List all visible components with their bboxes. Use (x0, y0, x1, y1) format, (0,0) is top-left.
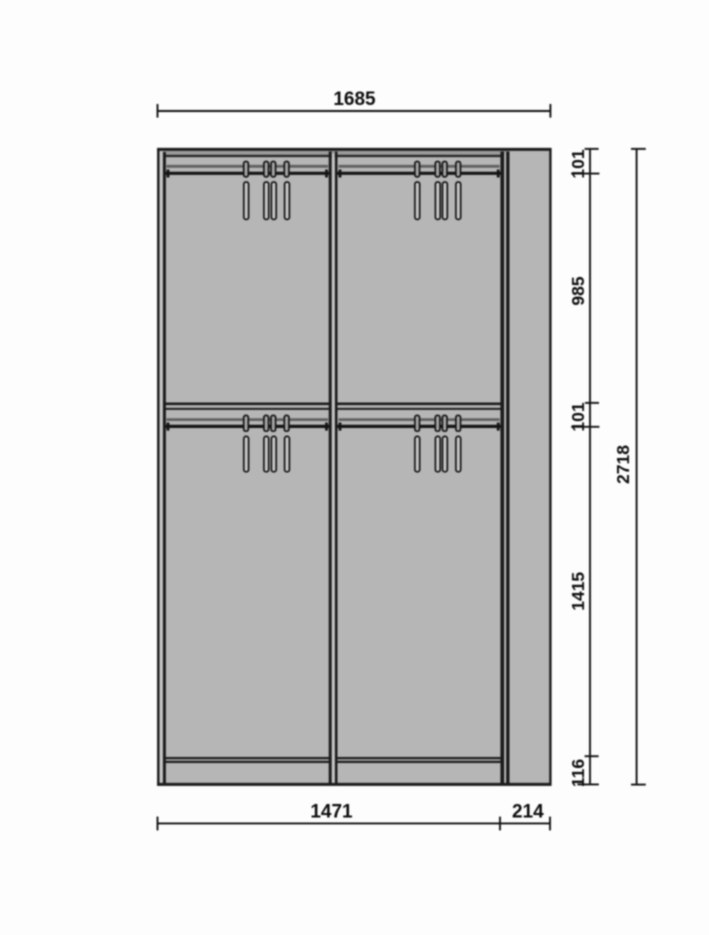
svg-text:1415: 1415 (568, 572, 588, 611)
svg-text:101: 101 (568, 149, 588, 178)
svg-text:116: 116 (568, 759, 588, 787)
svg-text:1685: 1685 (333, 89, 376, 110)
svg-text:1471: 1471 (310, 802, 353, 823)
svg-text:101: 101 (568, 402, 588, 431)
svg-text:2718: 2718 (613, 445, 633, 484)
svg-text:985: 985 (568, 276, 588, 305)
svg-text:214: 214 (512, 802, 544, 823)
